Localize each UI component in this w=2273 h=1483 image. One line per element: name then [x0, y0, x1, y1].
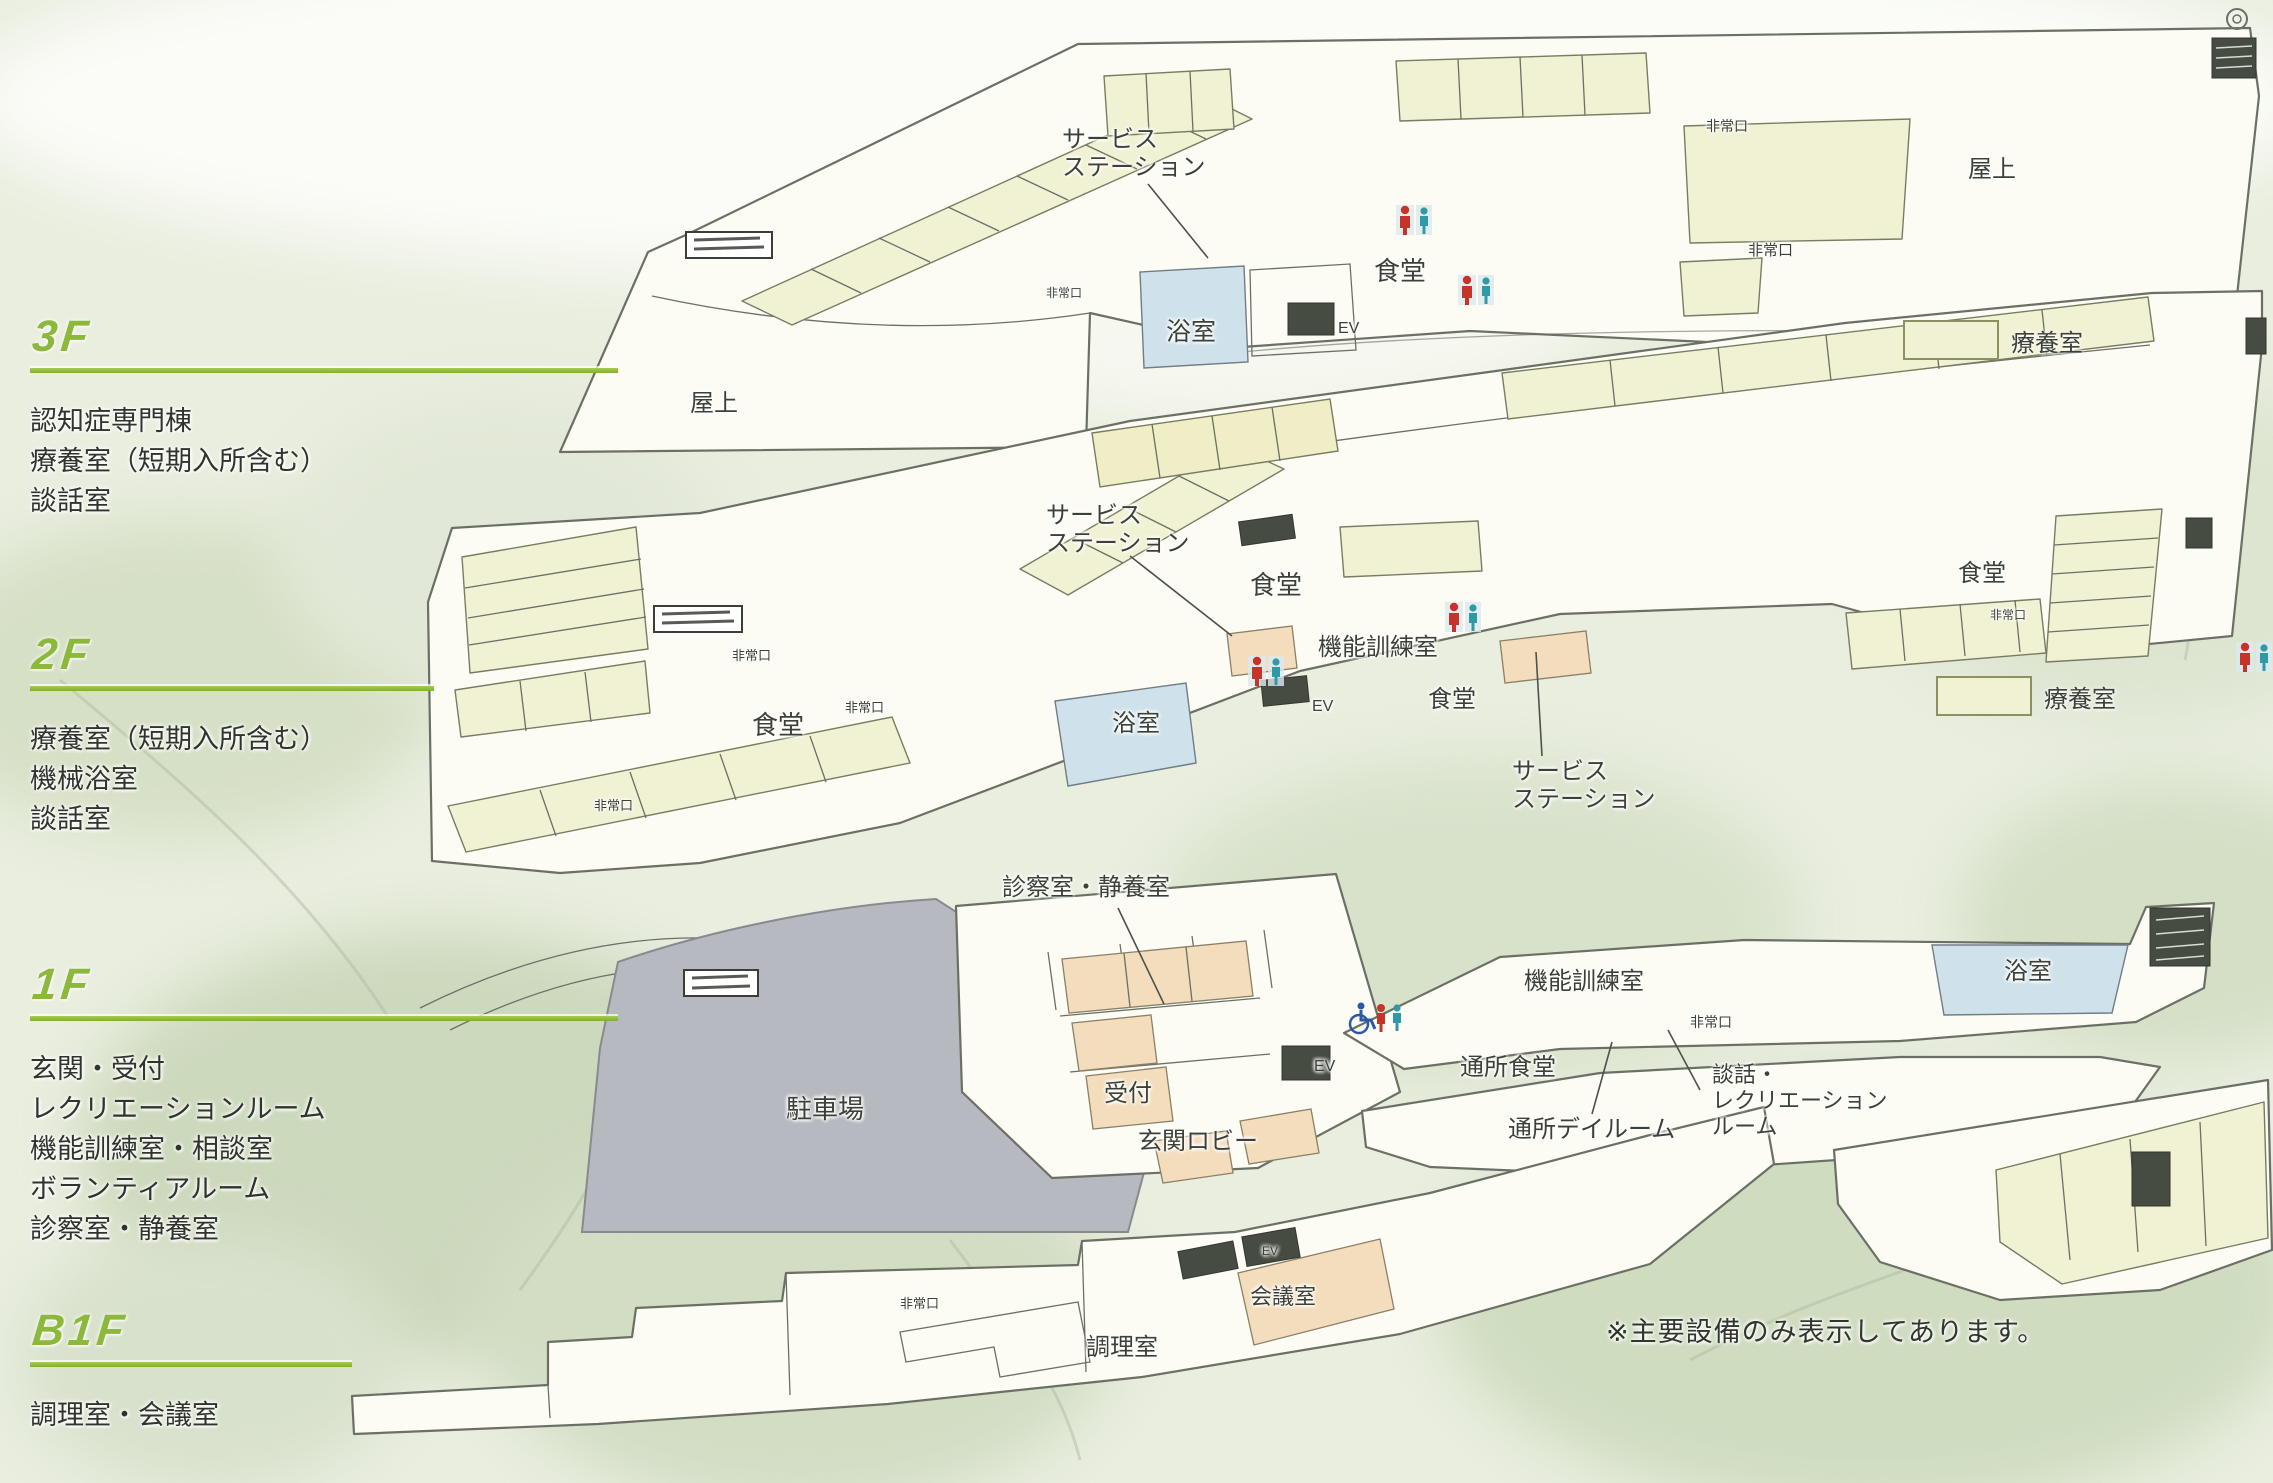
legend-swatch: [1936, 676, 2032, 716]
rooftop-vent-icon: [2224, 6, 2250, 37]
floor-room-item: 認知症専門棟: [30, 401, 618, 441]
label-ev-1f: EV: [1314, 1058, 1335, 1077]
floor-rule-2f: [30, 686, 434, 691]
label-exam-rest-room-1f: 診察室・静養室: [1002, 874, 1170, 902]
ev-shaft-3f: [1288, 303, 1334, 335]
label-bath-1f: 浴室: [2004, 958, 2052, 986]
label-bath-3f: 浴室: [1166, 318, 1216, 348]
floor-id-3f: 3F: [30, 312, 623, 362]
floor-guide-diagram: サービス ステーション食堂浴室EV屋上屋上非常口非常口非常口サービス ステーショ…: [0, 0, 2273, 1483]
note-text: ※主要設備のみ表示してあります。: [1606, 1310, 2045, 1349]
room-block: [1340, 521, 1482, 577]
floor-header-3f: 3F 認知症専門棟療養室（短期入所含む）談話室: [30, 312, 618, 521]
legend-swatch: [1903, 320, 1999, 360]
toilet-pair-icon: [1396, 203, 1436, 242]
label-dining-2f-left: 食堂: [752, 710, 804, 741]
label-dining-2f-right: 食堂: [1958, 560, 2006, 588]
label-dining-3f: 食堂: [1374, 256, 1426, 287]
stair-box: [2246, 318, 2266, 354]
floor-id-1f: 1F: [30, 960, 623, 1010]
accessible-toilet-icon: [1348, 1000, 1412, 1041]
label-emergency-exit: 非常口: [1990, 608, 2026, 622]
floor-room-list-2f: 療養室（短期入所含む）機械浴室談話室: [30, 719, 434, 839]
label-reception-1f: 受付: [1104, 1080, 1152, 1108]
label-service-station-2f-a: サービス ステーション: [1046, 502, 1190, 559]
label-service-station-2f-b: サービス ステーション: [1512, 758, 1656, 815]
stair-box: [2132, 1152, 2170, 1206]
label-service-station-3f: サービス ステーション: [1062, 126, 1206, 183]
floor-room-item: 談話室: [30, 481, 618, 521]
service-station-room-2f: [1500, 631, 1591, 683]
label-emergency-exit: 非常口: [900, 1296, 939, 1311]
toilet-pair-icon: [1248, 654, 1288, 693]
label-lounge-recreation-1f: 談話・ レクリエーション ルーム: [1712, 1062, 1888, 1140]
legend-ryoyoshitsu-3f: 療養室: [1903, 320, 2083, 360]
label-roof-left-3f: 屋上: [690, 390, 738, 418]
floor-room-item: 玄関・受付: [30, 1049, 618, 1089]
floor-room-item: 療養室（短期入所含む）: [30, 719, 434, 759]
floor-room-item: 機能訓練室・相談室: [30, 1129, 618, 1169]
floor-room-item: 診察室・静養室: [30, 1209, 618, 1249]
entrance-sign: [686, 232, 772, 258]
floor-room-item: 療養室（短期入所含む）: [30, 441, 618, 481]
floor-id-b1f: B1F: [30, 1306, 357, 1356]
floor-header-b1f: B1F 調理室・会議室: [30, 1306, 352, 1435]
label-meeting-room-b1f: 会議室: [1250, 1284, 1316, 1310]
floor-room-item: ボランティアルーム: [30, 1169, 618, 1209]
floor-id-2f: 2F: [30, 630, 439, 680]
label-entrance-lobby-1f: 玄関ロビー: [1138, 1128, 1258, 1156]
room-block: [1684, 119, 1910, 243]
legend-ryoyoshitsu-2f: 療養室: [1936, 676, 2116, 716]
label-parking-1f: 駐車場: [786, 1094, 864, 1125]
toilet-pair-icon: [2236, 640, 2273, 679]
floor-room-item: レクリエーションルーム: [30, 1089, 618, 1129]
label-kitchen-b1f: 調理室: [1086, 1334, 1158, 1362]
bath-room-3f: [1140, 266, 1248, 368]
legend-label: 療養室: [2011, 323, 2083, 358]
room-block: [1072, 1015, 1157, 1071]
floor-room-list-3f: 認知症専門棟療養室（短期入所含む）談話室: [30, 401, 618, 521]
label-emergency-exit: 非常口: [845, 700, 884, 715]
label-ev-2f: EV: [1312, 698, 1333, 717]
label-emergency-exit: 非常口: [594, 798, 633, 813]
entrance-sign: [654, 606, 742, 632]
stair-box: [2186, 518, 2212, 548]
label-dining-2f-mid: 食堂: [1428, 686, 1476, 714]
label-dining-2f-center: 食堂: [1250, 570, 1302, 601]
floor-header-2f: 2F 療養室（短期入所含む）機械浴室談話室: [30, 630, 434, 839]
floor-room-item: 談話室: [30, 799, 434, 839]
label-training-room-1f: 機能訓練室: [1524, 968, 1644, 996]
legend-label: 療養室: [2044, 679, 2116, 714]
floor-room-item: 機械浴室: [30, 759, 434, 799]
label-daycare-dayroom-1f: 通所デイルーム: [1508, 1116, 1675, 1144]
floor-rule-1f: [30, 1016, 618, 1021]
floor-room-item: 調理室・会議室: [30, 1395, 352, 1435]
label-emergency-exit: 非常口: [1706, 118, 1748, 135]
label-ev-3f: EV: [1338, 320, 1359, 339]
label-emergency-exit: 非常口: [1690, 1014, 1732, 1031]
entrance-sign: [684, 970, 758, 996]
label-bath-2f: 浴室: [1112, 710, 1160, 738]
floor-rule-b1f: [30, 1362, 352, 1367]
label-emergency-exit: 非常口: [1046, 286, 1082, 300]
label-emergency-exit: 非常口: [1748, 242, 1793, 260]
label-emergency-exit: 非常口: [732, 648, 771, 663]
floor-rule-3f: [30, 368, 618, 373]
floor-room-list-b1f: 調理室・会議室: [30, 1395, 352, 1435]
floor-header-1f: 1F 玄関・受付レクリエーションルーム機能訓練室・相談室ボランティアルーム診察室…: [30, 960, 618, 1249]
room-strip: [2046, 509, 2162, 662]
room-block: [1680, 258, 1762, 316]
label-training-room-2f: 機能訓練室: [1318, 634, 1438, 662]
floor-room-list-1f: 玄関・受付レクリエーションルーム機能訓練室・相談室ボランティアルーム診察室・静養…: [30, 1049, 618, 1249]
label-roof-right-3f: 屋上: [1968, 156, 2016, 184]
label-ev-b1f: EV: [1262, 1244, 1278, 1258]
toilet-pair-icon: [1445, 600, 1485, 639]
label-daycare-dining-1f: 通所食堂: [1460, 1054, 1556, 1082]
toilet-pair-icon: [1458, 273, 1498, 312]
